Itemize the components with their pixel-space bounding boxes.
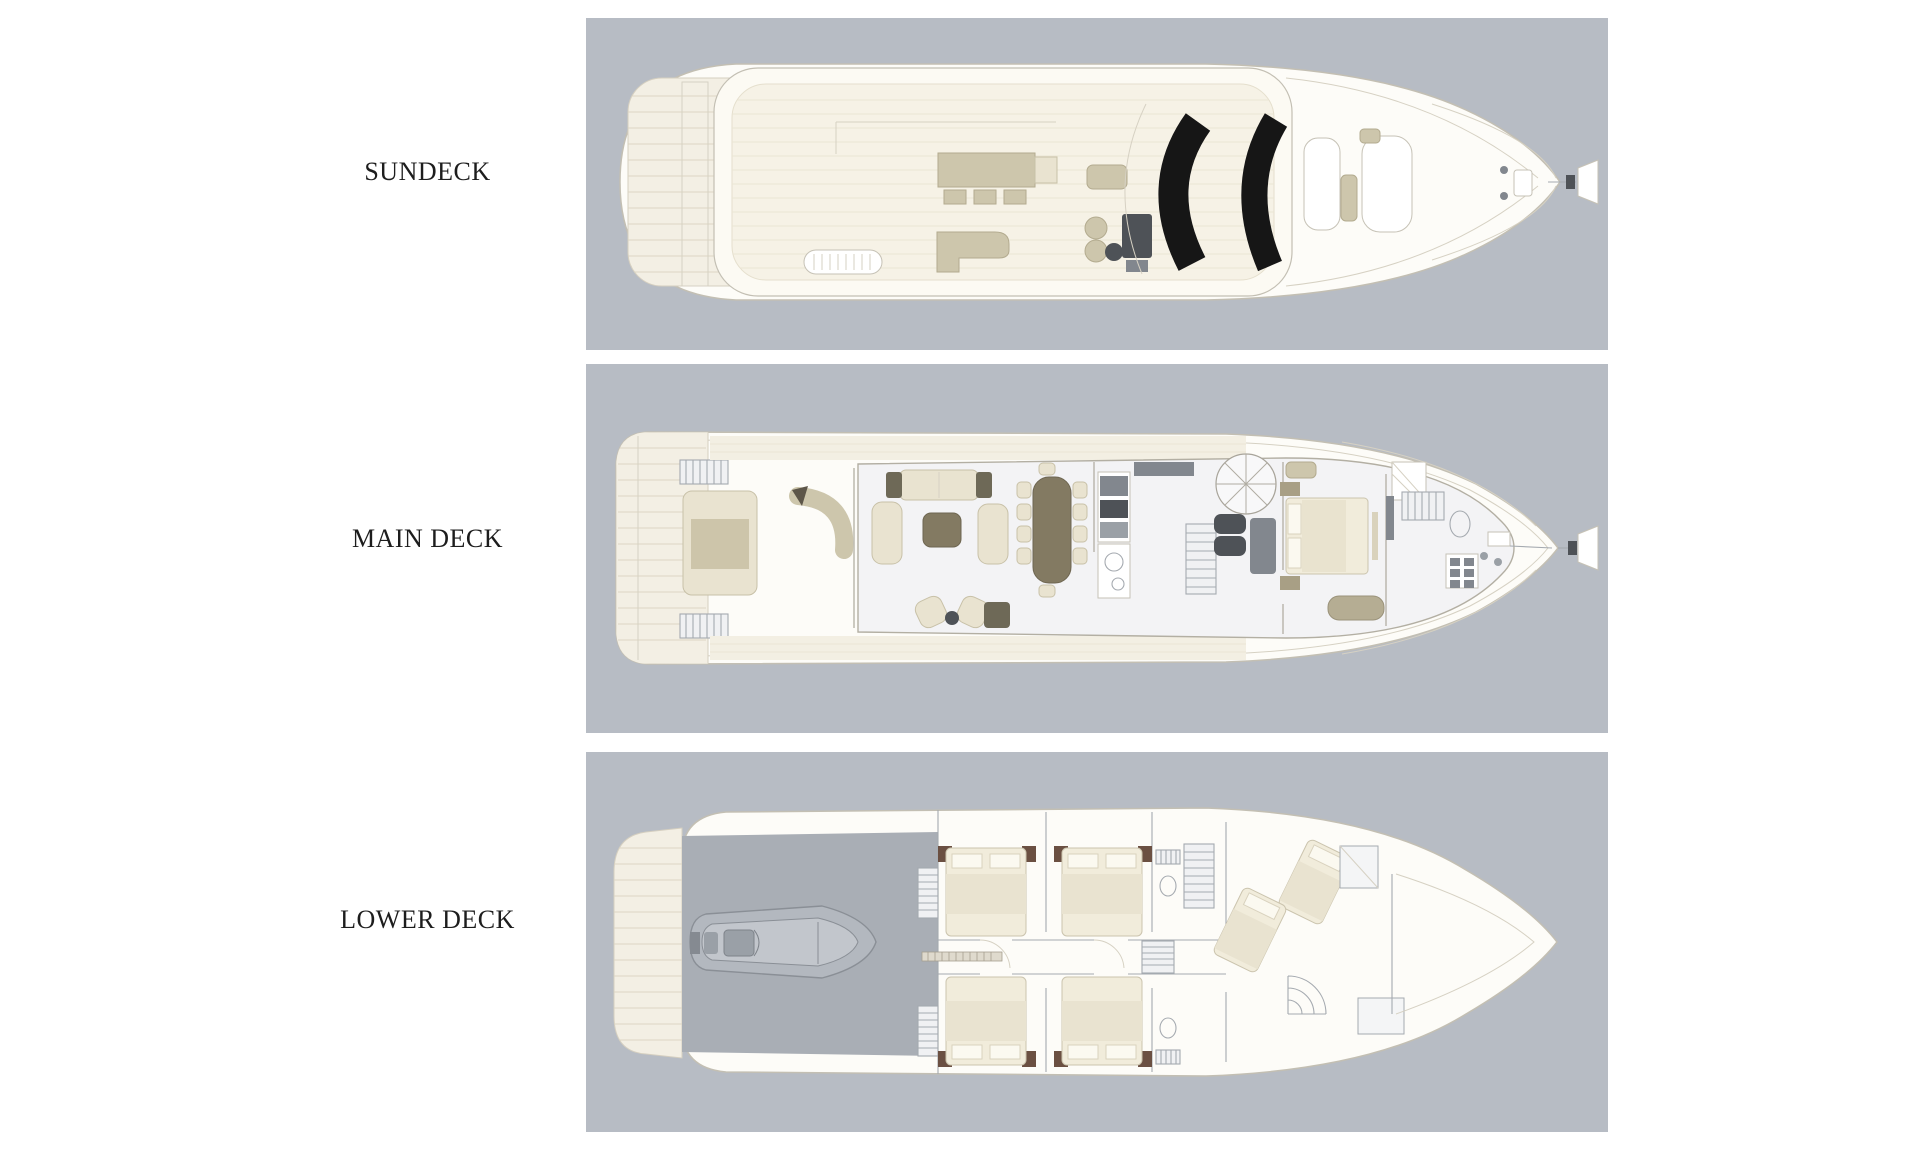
deck-label-sundeck: SUNDECK [270,157,585,187]
sundeck-sunpad [1087,165,1127,189]
deck-label-main-deck: MAIN DECK [270,524,585,554]
stern-swim-platform [614,828,682,1058]
sundeck-plan-drawing [586,18,1608,350]
tender-boat [690,906,876,978]
main-deck-plan-drawing [586,364,1608,733]
salon-coffee-table [923,513,961,547]
deck-label-lower-deck: LOWER DECK [270,905,585,935]
sundeck-louver-grate [804,250,882,274]
tender-garage [682,832,938,1056]
lower-deck-plan-drawing [586,752,1608,1132]
salon-sofa [886,470,992,500]
yacht-deck-plans-page: SUNDECK [0,0,1920,1166]
lower-deck-panel [586,752,1608,1132]
main-deck-aft-sunpad [683,491,757,595]
sundeck-panel [586,18,1608,350]
main-deck-panel [586,364,1608,733]
